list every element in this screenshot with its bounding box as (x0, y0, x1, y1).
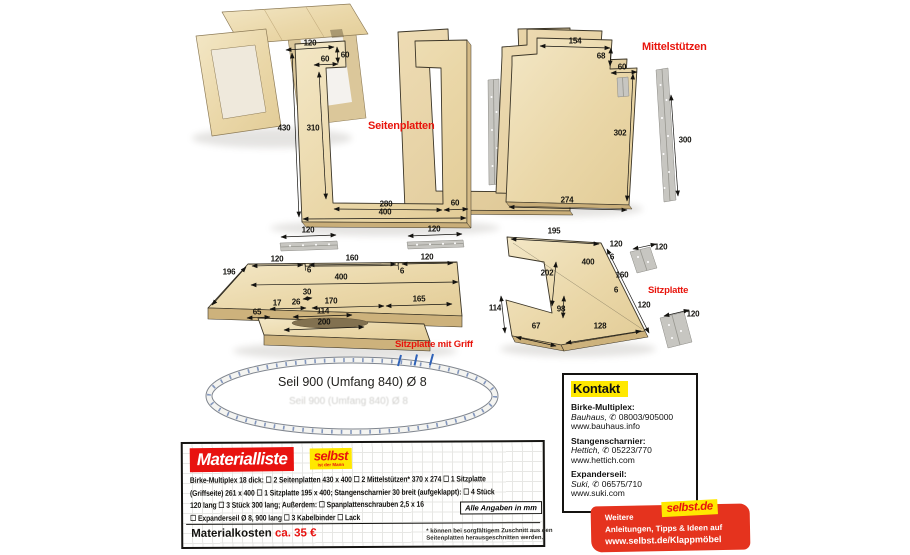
dim-label: 430 (278, 124, 291, 133)
dim-label: 26 (292, 298, 301, 307)
dim-label: 60 (451, 199, 460, 208)
material-cost-value: ca. 35 € (275, 527, 317, 539)
kontakt-web: www.hettich.com (571, 456, 692, 466)
dim-label: 6 (610, 253, 614, 262)
selbst-logo-sub: ist der Mann (314, 462, 348, 468)
dim-label: 128 (594, 322, 607, 331)
dim-label: 6 (614, 286, 618, 295)
label-seitenplatten: Seitenplatten (368, 120, 434, 132)
units-badge: Alle Angaben in mm (460, 501, 542, 514)
dim-label: 196 (223, 268, 236, 277)
dim-label: 120 (428, 225, 441, 234)
kontakt-box: Kontakt Birke-Multiplex: Bauhaus, ✆ 0800… (562, 373, 698, 513)
material-footnote-line2: Seitenplatten herausgeschnitten werden. (426, 535, 552, 542)
dim-label: 120 (687, 310, 700, 319)
dim-label: 202 (541, 269, 554, 278)
selbst-logo: selbst ist der Mann (310, 448, 352, 470)
banner-line1: Weitere (605, 513, 634, 523)
dim-label: 30 (303, 288, 312, 297)
kontakt-vendor: Hettich, (571, 445, 600, 455)
dim-label: 400 (379, 208, 392, 217)
label-sitzplatte: Sitzplatte (648, 285, 688, 296)
hinges-120-pair (280, 240, 464, 251)
banner-line2: Anleitungen, Tipps & Ideen auf (605, 523, 722, 534)
kontakt-phone: ✆ 06575/710 (592, 479, 642, 489)
kontakt-phone: ✆ 08003/905000 (609, 412, 673, 422)
materialliste-divider (186, 522, 540, 525)
dim-label: 154 (569, 37, 582, 46)
materialliste-box: Materialliste selbst ist der Mann Birke-… (181, 440, 546, 549)
kontakt-section: Stangenscharnier: Hettich, ✆ 05223/770 w… (571, 437, 692, 466)
rope-caption-ghost: Seil 900 (Umfang 840) Ø 8 (289, 396, 408, 407)
dim-label: 68 (597, 52, 606, 61)
dim-label: 170 (325, 297, 338, 306)
dim-label: 114 (489, 304, 501, 313)
material-line: Birke-Multiplex 18 dick: ☐ 2 Seitenplatt… (190, 474, 486, 485)
assembled-stool-render (196, 4, 368, 136)
material-cost: Materialkosten ca. 35 € (191, 527, 316, 540)
dim-label: 120 (421, 253, 434, 262)
dim-label: 300 (679, 136, 692, 145)
kontakt-web: www.bauhaus.info (571, 422, 692, 432)
dim-label: 6 (307, 266, 311, 275)
dim-label: 165 (413, 295, 426, 304)
dim-label: 400 (582, 258, 595, 267)
label-sitzplatte-griff: Sitzplatte mit Griff (395, 339, 473, 350)
dim-label: 120 (655, 243, 668, 252)
dim-label: 302 (614, 129, 627, 138)
dim-label: 200 (318, 318, 331, 327)
hinge-on-shoulder (617, 77, 629, 97)
selbst-de-logo: selbst.de (661, 499, 718, 517)
dim-label: 120 (304, 39, 317, 48)
dim-label: 60 (321, 55, 330, 64)
dim-label: 17 (273, 299, 282, 308)
dim-label: 120 (638, 301, 651, 310)
dim-label: 274 (561, 196, 574, 205)
dim-label: 60 (341, 51, 350, 60)
rope-loop (209, 354, 495, 432)
kontakt-web: www.suki.com (571, 489, 692, 499)
dim-label: 67 (532, 322, 541, 331)
kontakt-phone: ✆ 05223/770 (602, 445, 652, 455)
dim-label: 195 (548, 227, 561, 236)
selbst-de-banner: selbst.de Weitere Anleitungen, Tipps & I… (592, 504, 750, 551)
rope-caption: Seil 900 (Umfang 840) Ø 8 (278, 375, 427, 389)
kontakt-section: Expanderseil: Suki, ✆ 06575/710 www.suki… (571, 470, 692, 499)
label-mittelstuetzen: Mittelstützen (642, 41, 707, 53)
material-line: 120 lang ☐ 3 Stück 300 lang; Außerdem: ☐… (190, 500, 424, 510)
dim-label: 120 (302, 226, 315, 235)
kontakt-title: Kontakt (571, 381, 628, 397)
dim-label: 65 (253, 308, 262, 317)
dim-label: 6 (400, 267, 404, 276)
selbst-logo-word: selbst (314, 449, 348, 463)
dim-label: 120 (271, 255, 284, 264)
dim-label: 160 (616, 271, 629, 280)
material-line: (Griffseite) 261 x 400 ☐ 1 Sitzplatte 19… (190, 487, 495, 498)
dim-label: 60 (618, 63, 627, 72)
dim-label: 400 (335, 273, 348, 282)
kontakt-section: Birke-Multiplex: Bauhaus, ✆ 08003/905000… (571, 403, 692, 432)
materialliste-title: Materialliste (190, 447, 295, 472)
sitzplatte-part (506, 237, 648, 351)
kontakt-vendor: Suki, (571, 479, 590, 489)
dim-label: 98 (557, 305, 566, 314)
mittelstuetzen-parts (496, 29, 637, 209)
dim-label: 114 (317, 307, 329, 316)
dim-label: 160 (346, 254, 359, 263)
material-footnote: * können bei sorgfältigem Zuschnitt aus … (426, 528, 552, 542)
banner-line3: www.selbst.de/Klappmöbel (605, 534, 721, 546)
dim-label: 310 (307, 124, 320, 133)
kontakt-vendor: Bauhaus, (571, 412, 607, 422)
magazine-diagram-page: 1206060430310280604001201201546860302274… (0, 0, 910, 555)
material-cost-label: Materialkosten (191, 527, 272, 539)
hinge-strip-300 (656, 68, 676, 202)
material-line: ☐ Expanderseil Ø 8, 900 lang ☐ 3 Kabelbi… (190, 513, 360, 523)
dim-label: 120 (610, 240, 623, 249)
